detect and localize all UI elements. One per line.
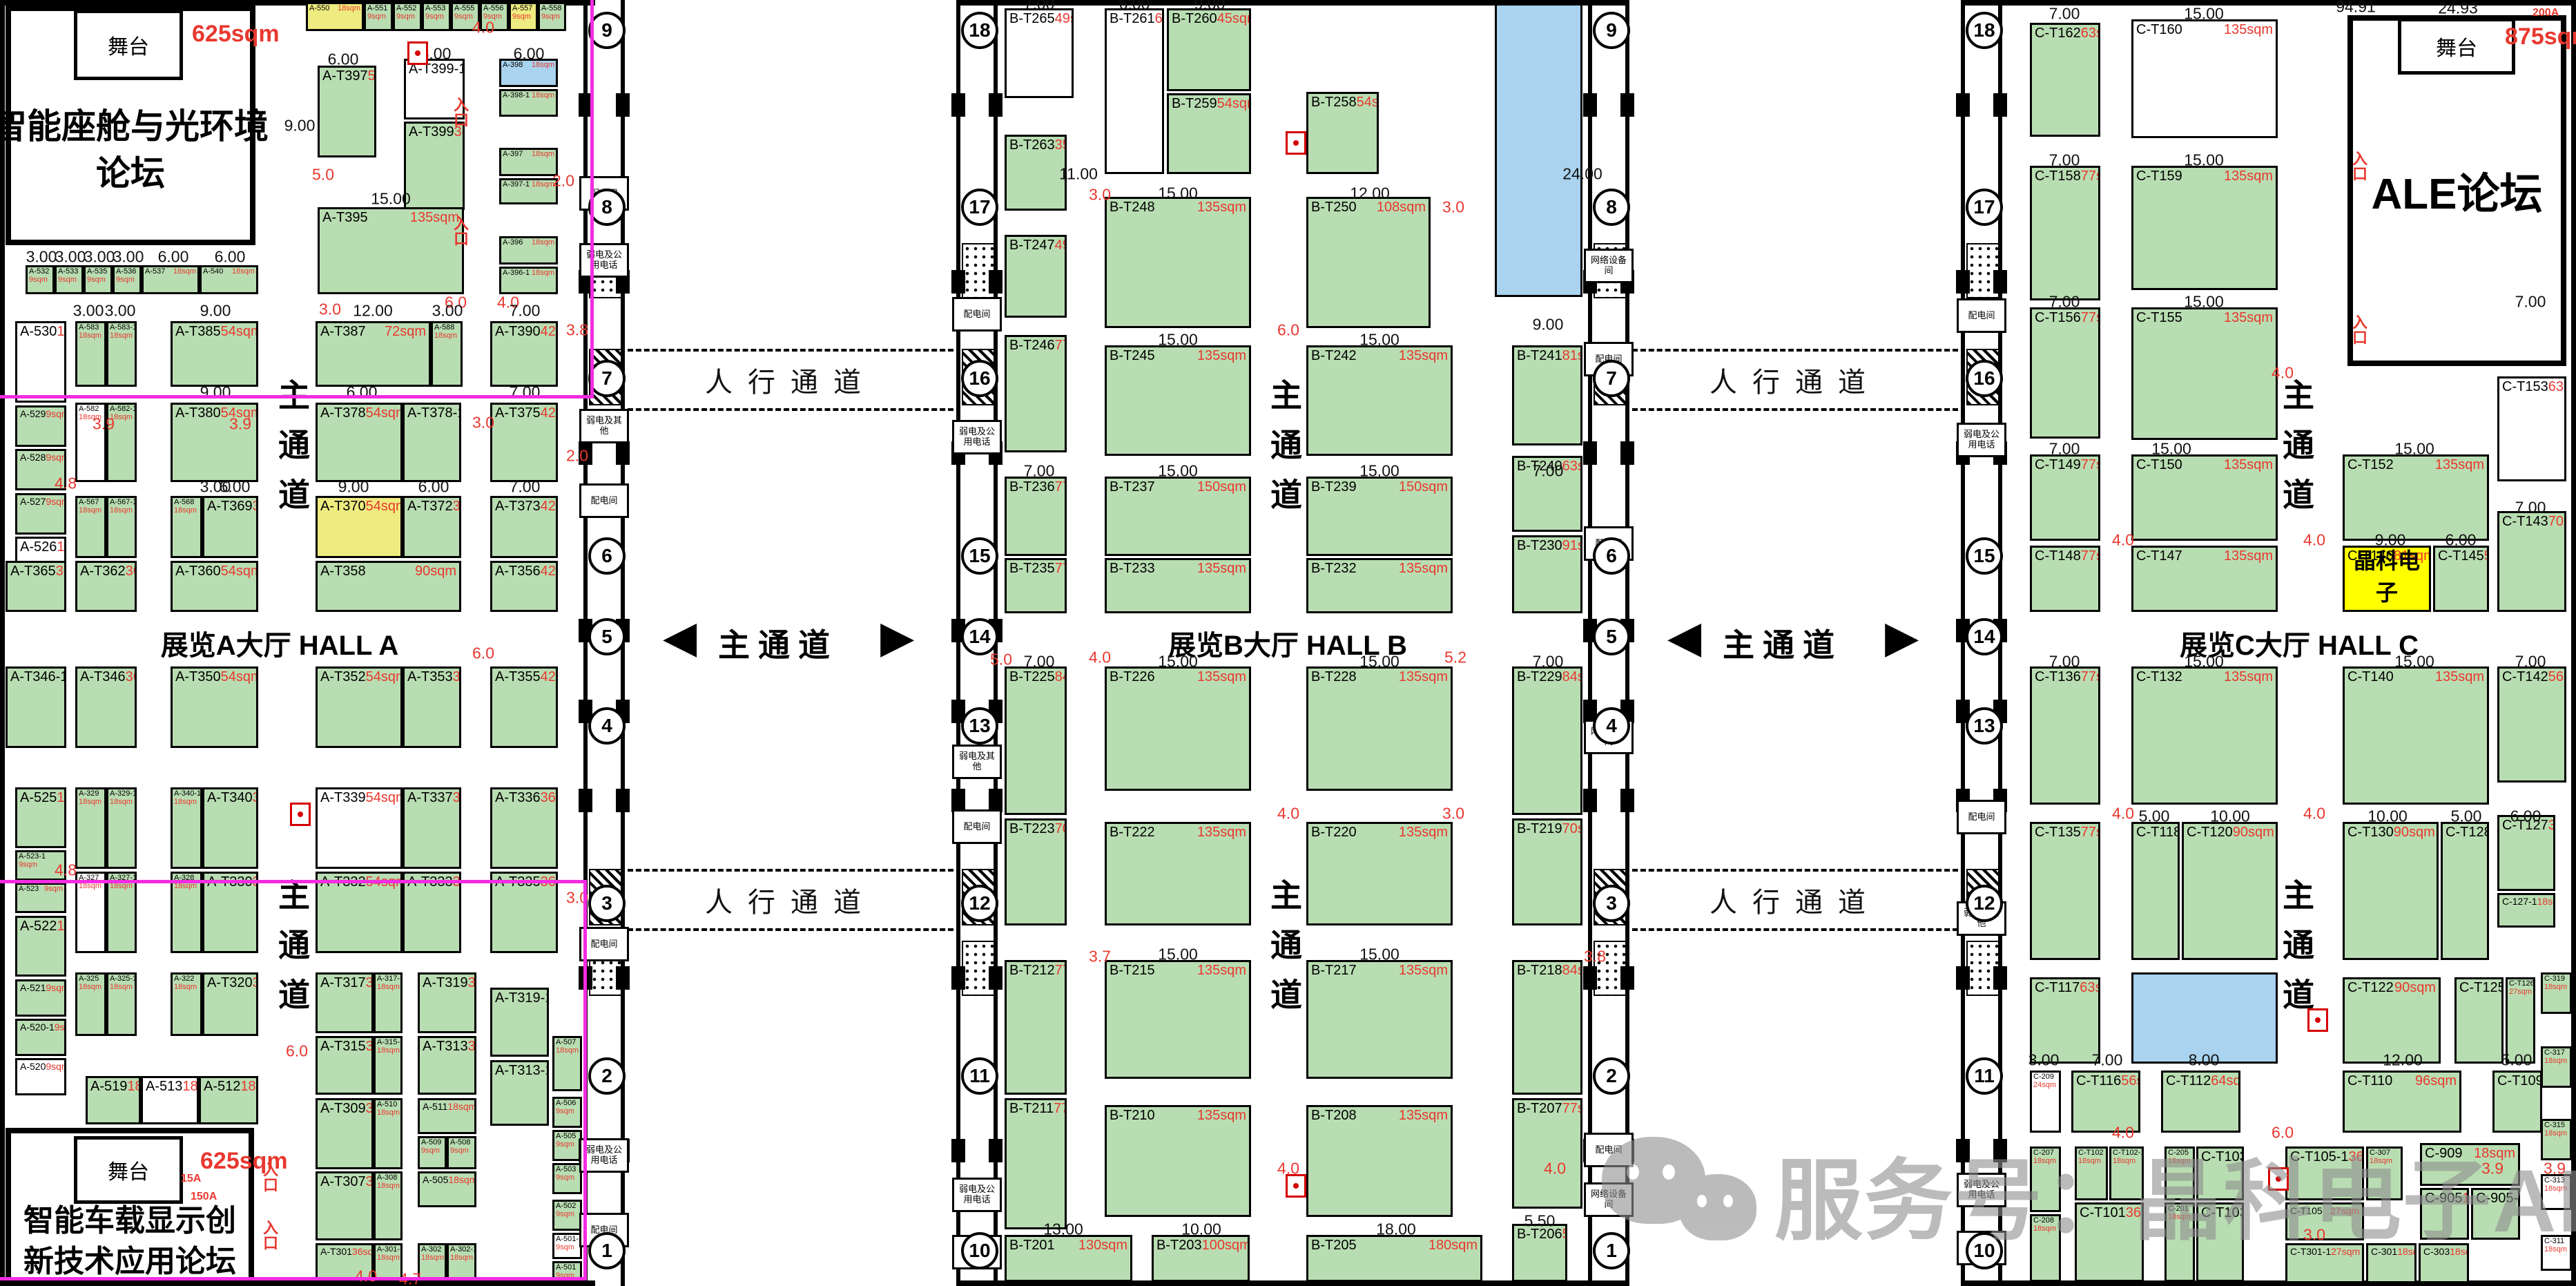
booth-C-905[interactable]: C-90518sqm [2420, 1188, 2469, 1240]
booth-A-511[interactable]: A-51118sqm [418, 1098, 476, 1134]
gate-number-17: 17 [1966, 189, 2003, 226]
booth-B-T245[interactable]: B-T245135sqm [1105, 345, 1251, 456]
booth-A-398-1[interactable]: A-398-118sqm [499, 89, 558, 117]
booth-A-529[interactable]: A-5299sqm [15, 405, 66, 447]
booth-A-540[interactable]: A-54018sqm [200, 265, 258, 294]
booth-A-519[interactable]: A-51918sqm [86, 1076, 141, 1124]
booth-C-T145[interactable]: C-T14554sqm [2433, 546, 2489, 612]
booth-C-T156[interactable]: C-T15677sqm [2030, 307, 2100, 439]
booth-C-T149[interactable]: C-T14977sqm [2030, 454, 2100, 541]
forum-smart-cockpit-area-label: 625sqm [192, 21, 280, 48]
booth-C-T135[interactable]: C-T13577sqm [2030, 822, 2100, 960]
booth-A-T372[interactable]: A-T37236sqm [403, 496, 461, 558]
booth-A-567[interactable]: A-56718sqm [75, 496, 106, 558]
booth-A-T356[interactable]: A-T35642sqm [490, 561, 558, 612]
booth-C-T143[interactable]: C-T14370sqm [2497, 511, 2566, 612]
booth-A-327[interactable]: A-32718sqm [75, 872, 106, 953]
booth-A-583-1[interactable]: A-583-118sqm [106, 321, 137, 387]
booth-A-397-1[interactable]: A-397-118sqm [499, 178, 558, 204]
gate-number-6: 6 [588, 537, 626, 575]
booth-label: C-90518sqm [2422, 1190, 2467, 1207]
corridor-gate-block [1583, 93, 1597, 117]
booth-B-T223[interactable]: B-T22370sqm [1005, 818, 1067, 925]
booth-A-T337[interactable]: A-T33736sqm [403, 787, 461, 869]
booth-label: C-T10136sqm [2077, 1205, 2142, 1222]
booth-B-T212[interactable]: B-T21277sqm [1005, 960, 1067, 1095]
booth-B-T233[interactable]: B-T233135sqm [1105, 558, 1251, 613]
booth-label: C-20118sqm [2167, 1205, 2193, 1222]
booth-label: C-T140135sqm [2345, 669, 2487, 686]
corridor-gate-block [951, 1139, 965, 1162]
dimension-label: 7.00 [2515, 499, 2546, 517]
booth-label: C-T14877sqm [2032, 548, 2098, 565]
gate-number-16: 16 [1966, 360, 2003, 397]
booth-A-301-1[interactable]: A-301-118sqm [374, 1243, 403, 1282]
booth-B-T247[interactable]: B-T24749sqm [1005, 235, 1067, 318]
hall-main-aisle-label-3: 主通道 [1261, 879, 1307, 1028]
booth-A-506[interactable]: A-5069sqm [552, 1097, 582, 1128]
booth-B-T241[interactable]: B-T24181sqm [1512, 345, 1582, 445]
corridor-gate-block [579, 789, 592, 812]
booth-A-536[interactable]: A-5369sqm [113, 265, 142, 294]
booth-A-510[interactable]: A-51018sqm [374, 1098, 403, 1169]
booth-C-303[interactable]: C-30318sqm [2419, 1243, 2469, 1283]
dimension-label: 4.0 [2112, 531, 2134, 550]
booth-label: A-39718sqm [501, 150, 556, 160]
dimension-label: 3.8 [566, 321, 588, 340]
booth-A-T333[interactable]: A-T33336sqm [403, 872, 461, 953]
booth-A-T309[interactable]: A-T30936sqm [316, 1098, 374, 1169]
booth-C-317[interactable]: C-31718sqm [2541, 1046, 2572, 1088]
booth-C-301[interactable]: C-30118sqm [2366, 1243, 2417, 1283]
booth-C-311[interactable]: C-31118sqm [2541, 1235, 2572, 1271]
booth-C-T152[interactable]: C-T152135sqm [2343, 454, 2489, 541]
booth-label: C-T12627sqm [2508, 979, 2533, 997]
booth-label: C-90918sqm [2422, 1145, 2518, 1162]
booth-B-T217[interactable]: B-T217135sqm [1306, 960, 1453, 1079]
booth-A-322[interactable]: A-32218sqm [171, 972, 202, 1036]
booth-B-T207[interactable]: B-T20777sqm [1512, 1098, 1582, 1209]
booth-B-T219[interactable]: B-T21970sqm [1512, 818, 1582, 925]
booth-B-T201[interactable]: B-T201130sqm [1005, 1235, 1132, 1282]
booth-A-533[interactable]: A-5339sqm [55, 265, 84, 294]
dimension-label: 4.8 [55, 861, 77, 880]
booth-A-328[interactable]: A-32818sqm [171, 872, 202, 953]
booth-label: A-53718sqm [144, 267, 197, 277]
booth-A-507[interactable]: A-50718sqm [552, 1036, 582, 1091]
booth-B-T210[interactable]: B-T210135sqm [1105, 1105, 1251, 1217]
gate-number-13: 13 [961, 707, 998, 745]
booth-label: A-5359sqm [86, 267, 110, 285]
booth-C-307[interactable]: C-30718sqm [2366, 1146, 2403, 1200]
utility-room-18: 网络设备间 [1584, 1182, 1634, 1217]
booth-label: B-T24181sqm [1514, 347, 1580, 365]
booth-C-T101[interactable]: C-T10136sqm [2075, 1202, 2144, 1282]
dimension-label: 11.00 [1059, 165, 1098, 184]
booth-label: A-T32036sqm [204, 975, 256, 992]
booth-A-T373[interactable]: A-T37342sqm [490, 496, 558, 558]
dimension-label: 7.00 [1024, 653, 1055, 671]
booth-label: C-30718sqm [2368, 1149, 2401, 1166]
booth-A-T350[interactable]: A-T35054sqm [171, 666, 258, 748]
booth-C-209[interactable]: C-20924sqm [2030, 1071, 2061, 1133]
booth-A-502[interactable]: A-5029sqm [552, 1200, 582, 1231]
booth-B-T246[interactable]: B-T24677sqm [1005, 335, 1067, 452]
booth-C-T109[interactable]: C-T10940sqm [2492, 1071, 2542, 1133]
booth-B-T225[interactable]: B-T22584sqm [1005, 666, 1067, 815]
booth-label: A-317-118sqm [376, 975, 400, 992]
booth-B-T236[interactable]: B-T23677sqm [1005, 477, 1067, 556]
booth-label: A-5329sqm [28, 267, 52, 285]
booth-C-T130[interactable]: C-T13090sqm [2343, 822, 2439, 960]
booth-A-520-1[interactable]: A-520-19sqm [15, 1019, 66, 1056]
booth-A-530[interactable]: A-53018sqm [15, 321, 66, 403]
booth-A-T369[interactable]: A-T36936sqm [202, 496, 258, 558]
booth-A-T307[interactable]: A-T30736sqm [316, 1171, 374, 1240]
booth-A-302-1[interactable]: A-302-118sqm [447, 1243, 476, 1282]
dimension-label: 4.0 [2303, 531, 2325, 550]
booth-B-T220[interactable]: B-T220135sqm [1306, 822, 1453, 925]
booth-A-583[interactable]: A-58318sqm [75, 321, 106, 387]
booth-A-T397[interactable]: A-T39754sqm [318, 66, 376, 157]
booth-A-340-1[interactable]: A-340-118sqm [171, 787, 202, 869]
booth-label: B-T222135sqm [1107, 824, 1249, 841]
booth-B-T239[interactable]: B-T239150sqm [1306, 477, 1453, 556]
booth-A-308[interactable]: A-30818sqm [374, 1171, 403, 1240]
booth-A-537[interactable]: A-53718sqm [142, 265, 200, 294]
booth-A-553[interactable]: A-5539sqm [422, 2, 451, 31]
booth-C-T102[interactable]: C-T10218sqm [2075, 1146, 2108, 1200]
booth-A-508[interactable]: A-5089sqm [447, 1136, 476, 1169]
booth-A-T395[interactable]: A-T395135sqm [318, 207, 464, 294]
booth-C-T128[interactable]: C-T12845sqm [2441, 822, 2489, 960]
booth-label: C-T11656sqm [2073, 1073, 2138, 1090]
booth-label: B-T215135sqm [1107, 962, 1249, 979]
booth-A-520[interactable]: A-5209sqm [15, 1058, 66, 1095]
booth-blue-2[interactable] [2131, 972, 2278, 1064]
booth-A-T353[interactable]: A-T35336sqm [403, 666, 461, 748]
booth-C-T132[interactable]: C-T132135sqm [2131, 666, 2278, 805]
corridor-gate-block [1993, 93, 2007, 117]
booth-label: B-T21277sqm [1007, 962, 1065, 979]
booth-label: B-T22370sqm [1007, 820, 1065, 838]
booth-A-396[interactable]: A-39618sqm [499, 236, 558, 265]
booth-C-T110[interactable]: C-T11096sqm [2343, 1071, 2461, 1133]
booth-C-207[interactable]: C-20718sqm [2030, 1146, 2061, 1212]
forum-vehicle-display-title: 智能车载显示创新技术应用论坛 [23, 1200, 236, 1283]
booth-B-T235[interactable]: B-T23577sqm [1005, 558, 1067, 613]
booth-C-T142[interactable]: C-T14256sqm [2497, 666, 2566, 783]
booth-A-501-1[interactable]: A-501-19sqm [552, 1233, 582, 1259]
dimension-label: 4.0 [2112, 805, 2134, 823]
booth-label: A-T31936sqm [420, 975, 474, 992]
booth-A-T387[interactable]: A-T38772sqm [316, 321, 431, 387]
dimension-label: 7.00 [1024, 0, 1055, 14]
booth-C-T158[interactable]: C-T15877sqm [2030, 166, 2100, 300]
booth-label: A-T34036sqm [204, 789, 256, 807]
booth-A-T375[interactable]: A-T37542sqm [490, 403, 558, 482]
booth-A-523[interactable]: A-5239sqm [15, 883, 66, 913]
booth-B-T248[interactable]: B-T248135sqm [1105, 197, 1251, 328]
booth-label: A-56718sqm [77, 498, 104, 515]
booth-A-T362[interactable]: A-T36236sqm [75, 561, 137, 612]
booth-C-T301-1[interactable]: C-T301-127sqm [2285, 1243, 2364, 1283]
booth-B-T226[interactable]: B-T226135sqm [1105, 666, 1251, 791]
corridor-gate-block [989, 270, 1003, 294]
booth-label: C-T301-127sqm [2287, 1245, 2362, 1258]
booth-A-325-1[interactable]: A-325-118sqm [106, 972, 137, 1036]
booth-C-T103-1[interactable]: C-T103-136sqm [2196, 1146, 2244, 1200]
utility-room-9: 弱电及其他 [952, 745, 1002, 779]
fire-hydrant-icon-2 [1286, 131, 1306, 155]
booth-C-T150[interactable]: C-T150135sqm [2131, 454, 2278, 541]
booth-A-T399[interactable]: A-T39936sqm [404, 122, 465, 210]
corridor-gate-block [1620, 441, 1634, 465]
booth-B-T263[interactable]: B-T26335sqm [1005, 135, 1067, 211]
booth-A-T332[interactable]: A-T33254sqm [316, 872, 403, 953]
gate-number-5: 5 [1593, 618, 1630, 655]
booth-A-525[interactable]: A-52518sqm [15, 787, 66, 848]
dimension-label: 6.00 [215, 248, 246, 267]
booth-B-T211[interactable]: B-T21177sqm [1005, 1098, 1067, 1229]
booth-A-509[interactable]: A-5099sqm [418, 1136, 447, 1169]
booth-A-T352[interactable]: A-T35254sqm [316, 666, 403, 748]
utility-room-10: 配电间 [952, 809, 1002, 844]
gate-number-7: 7 [588, 360, 626, 397]
booth-label: A-50718sqm [554, 1038, 580, 1055]
booth-C-T140[interactable]: C-T140135sqm [2343, 666, 2489, 805]
booth-B-T218[interactable]: B-T21884sqm [1512, 960, 1582, 1095]
forum-ale-area-label: 875sqm [2505, 23, 2576, 50]
booth-A-552[interactable]: A-5529sqm [393, 2, 422, 31]
booth-A-T358[interactable]: A-T35890sqm [316, 561, 461, 612]
booth-B-T258[interactable]: B-T25854sqm [1306, 92, 1379, 174]
booth-A-557[interactable]: A-5579sqm [509, 2, 538, 31]
booth-label: B-T205180sqm [1308, 1237, 1480, 1254]
dimension-label: 3.9 [229, 415, 251, 434]
booth-B-T242[interactable]: B-T242135sqm [1306, 345, 1453, 456]
booth-A-T317[interactable]: A-T31736sqm [316, 972, 374, 1033]
booth-C-909[interactable]: C-90918sqm [2420, 1143, 2520, 1186]
booth-label: C-T10940sqm [2495, 1073, 2540, 1090]
booth-label: C-T10527sqm [2287, 1205, 2362, 1218]
booth-C-905-1[interactable]: C-905-118sqm [2471, 1188, 2520, 1240]
booth-C-T160[interactable]: C-T160135sqm [2131, 19, 2278, 138]
booth-A-T378[interactable]: A-T37854sqm [316, 403, 403, 482]
gate-number-18: 18 [961, 12, 998, 49]
exhibition-floor-plan: 服务号：晶科电子APT 人行通道人行通道◀▶主通道人行通道人行通道◀▶主通道98… [0, 0, 2576, 1286]
booth-A-327-1[interactable]: A-327-118sqm [106, 872, 137, 953]
booth-C-T102-1[interactable]: C-T102-118sqm [2109, 1146, 2144, 1200]
gate-number-11: 11 [1966, 1057, 2003, 1095]
dimension-label: 3.00 [73, 302, 104, 320]
dimension-label: 4.0 [2303, 805, 2325, 823]
booth-A-T313[interactable]: A-T31336sqm [418, 1036, 476, 1095]
booth-B-T230[interactable]: B-T23091sqm [1512, 535, 1582, 613]
booth-B-T203[interactable]: B-T203100sqm [1152, 1235, 1250, 1282]
dimension-label: 7.00 [2515, 293, 2546, 311]
booth-blue-1[interactable] [1495, 3, 1582, 297]
booth-A-T319[interactable]: A-T31936sqm [418, 972, 476, 1033]
booth-A-513[interactable]: A-51318sqm [141, 1076, 199, 1124]
booth-C-313[interactable]: C-31318sqm [2541, 1174, 2572, 1210]
booth-C-T136[interactable]: C-T13677sqm [2030, 666, 2100, 805]
booth-label: C-T13577sqm [2032, 824, 2098, 841]
booth-A-T355[interactable]: A-T35542sqm [490, 666, 558, 748]
booth-label: A-5099sqm [420, 1138, 445, 1155]
booth-A-T319-1[interactable]: A-T319-136sqm [490, 988, 549, 1057]
booth-A-302[interactable]: A-30218sqm [418, 1243, 447, 1282]
booth-A-T346-1[interactable]: A-T346-136sqm [6, 666, 66, 748]
booth-label: A-51218sqm [201, 1078, 256, 1095]
dimension-label: 3.00 [113, 248, 144, 267]
booth-A-532[interactable]: A-5329sqm [26, 265, 55, 294]
dimension-label: 8.00 [2189, 1051, 2220, 1070]
booth-A-315-1[interactable]: A-315-118sqm [374, 1036, 403, 1095]
booth-label: A-398-118sqm [501, 91, 556, 101]
booth-A-397[interactable]: A-39718sqm [499, 148, 558, 176]
booth-label: A-5339sqm [57, 267, 81, 285]
booth-label: C-905-118sqm [2473, 1190, 2518, 1207]
entrance-label-2: 入口 [258, 1162, 280, 1192]
booth-A-535[interactable]: A-5359sqm [84, 265, 113, 294]
booth-A-T315[interactable]: A-T31536sqm [316, 1036, 374, 1095]
booth-B-T206[interactable]: B-T20655sqm [1512, 1224, 1567, 1282]
booth-C-315[interactable]: C-31518sqm [2541, 1119, 2572, 1160]
booth-B-T260[interactable]: B-T26045sqm [1167, 8, 1251, 91]
booth-C-205[interactable]: C-20518sqm [2165, 1146, 2195, 1200]
booth-A-329[interactable]: A-32918sqm [75, 787, 106, 869]
booth-A-521[interactable]: A-5219sqm [15, 979, 66, 1017]
booth-label: A-T313-130sqm [492, 1062, 547, 1079]
gate-number-12: 12 [961, 885, 998, 922]
booth-C-T155[interactable]: C-T155135sqm [2131, 307, 2278, 440]
booth-label: A-T37236sqm [405, 498, 459, 515]
booth-C-127-1[interactable]: C-127-118sqm [2497, 893, 2555, 928]
dimension-label: 6.0 [1277, 321, 1299, 340]
booth-A-503[interactable]: A-5039sqm [552, 1163, 582, 1194]
booth-A-T335[interactable]: A-T33536sqm [490, 872, 558, 953]
booth-C-T105-1[interactable]: C-T105-136sqm [2285, 1146, 2364, 1200]
booth-label: B-T233135sqm [1107, 560, 1249, 577]
booth-A-T313-1[interactable]: A-T313-130sqm [490, 1060, 549, 1126]
booth-C-T103[interactable]: C-T10336sqm [2196, 1202, 2244, 1282]
booth-C-T127[interactable]: C-T12736sqm [2497, 815, 2555, 891]
booth-label: C-T132135sqm [2133, 669, 2276, 686]
booth-A-329-1[interactable]: A-329-118sqm [106, 787, 137, 869]
booth-A-396-1[interactable]: A-396-118sqm [499, 267, 558, 294]
booth-B-T222[interactable]: B-T222135sqm [1105, 822, 1251, 925]
booth-C-T112[interactable]: C-T11264sqm [2161, 1071, 2240, 1133]
booth-label: A-5299sqm [17, 407, 64, 421]
booth-C-T118[interactable]: C-T11845sqm [2131, 822, 2180, 960]
dimension-label: 6.00 [158, 248, 189, 267]
booth-A-551[interactable]: A-5519sqm [364, 2, 393, 31]
booth-A-T320[interactable]: A-T32036sqm [202, 972, 258, 1036]
booth-A-T330[interactable]: A-T33036sqm [202, 872, 258, 953]
booth-A-505[interactable]: A-50518sqm [418, 1171, 476, 1207]
corridor-gate-block [1620, 966, 1634, 990]
gate-number-10: 10 [1966, 1232, 2003, 1269]
booth-B-T232[interactable]: B-T232135sqm [1306, 558, 1453, 613]
booth-label: A-5519sqm [366, 4, 391, 21]
hall-main-aisle-label-1: 主通道 [269, 879, 315, 1028]
booth-A-325[interactable]: A-32518sqm [75, 972, 106, 1036]
booth-A-588[interactable]: A-58818sqm [431, 321, 463, 387]
booth-A-T339[interactable]: A-T33954sqm [316, 787, 403, 869]
booth-C-201[interactable]: C-20118sqm [2165, 1202, 2195, 1282]
booth-A-550[interactable]: A-55018sqm [306, 2, 364, 31]
dimension-label: 15.00 [1359, 462, 1400, 481]
dimension-label: 3.00 [2028, 1051, 2060, 1070]
booth-label: A-5059sqm [554, 1132, 580, 1149]
booth-C-319[interactable]: C-31918sqm [2541, 972, 2572, 1014]
booth-A-T385[interactable]: A-T38554sqm [171, 321, 258, 387]
booth-A-317-1[interactable]: A-317-118sqm [374, 972, 403, 1033]
dimension-label: 7.00 [2049, 653, 2080, 671]
hall-main-aisle-label-2: 主通道 [1261, 378, 1307, 528]
booth-A-T390[interactable]: A-T39042sqm [490, 321, 558, 387]
booth-A-527[interactable]: A-5279sqm [15, 493, 66, 535]
booth-label: A-52618sqm [17, 539, 64, 556]
booth-B-T215[interactable]: B-T215135sqm [1105, 960, 1251, 1079]
booth-A-T346[interactable]: A-T34636sqm [75, 666, 137, 748]
gate-number-10: 10 [961, 1232, 998, 1269]
booth-A-T340[interactable]: A-T34036sqm [202, 787, 258, 869]
booth-C-208[interactable]: C-20818sqm [2030, 1214, 2061, 1282]
booth-C-T147[interactable]: C-T147135sqm [2131, 546, 2278, 612]
booth-B-T261[interactable]: B-T26166sqm [1105, 8, 1164, 174]
booth-C-T148[interactable]: C-T14877sqm [2030, 546, 2100, 612]
booth-A-522[interactable]: A-52218sqm [15, 916, 66, 977]
main-aisle-arrow-left: ◀ [1667, 615, 1701, 659]
booth-A-T378-1[interactable]: A-T378-136sqm [403, 403, 461, 482]
gate-number-1: 1 [588, 1232, 626, 1269]
booth-A-558[interactable]: A-5589sqm [538, 2, 566, 31]
booth-B-T205[interactable]: B-T205180sqm [1306, 1235, 1482, 1282]
booth-C-T159[interactable]: C-T159135sqm [2131, 166, 2278, 290]
booth-label: A-5039sqm [554, 1165, 580, 1182]
booth-A-T336[interactable]: A-T33636sqm [490, 787, 558, 869]
booth-C-T153[interactable]: C-T15363sqm [2497, 376, 2566, 481]
booth-label: A-58318sqm [77, 323, 104, 340]
booth-C-T125[interactable]: C-T12545sqm [2454, 977, 2504, 1064]
booth-B-T229[interactable]: B-T22984sqm [1512, 666, 1582, 815]
booth-A-T370[interactable]: A-T37054sqm [316, 496, 403, 558]
booth-B-T250[interactable]: B-T250108sqm [1306, 197, 1431, 328]
gate-number-9: 9 [1593, 12, 1630, 49]
booth-A-T360[interactable]: A-T36054sqm [171, 561, 258, 612]
booth-A-567-1[interactable]: A-567-118sqm [106, 496, 137, 558]
booth-B-T259[interactable]: B-T25954sqm [1167, 93, 1251, 174]
booth-C-T162[interactable]: C-T16263sqm [2030, 23, 2100, 137]
booth-A-T365[interactable]: A-T36536sqm [6, 561, 66, 612]
forum-smart-cockpit-stage: 舞台 [74, 10, 183, 80]
booth-B-T228[interactable]: B-T228135sqm [1306, 666, 1453, 791]
booth-C-T146[interactable]: C-T14681sqm晶科电子 [2343, 546, 2431, 612]
booth-A-505[interactable]: A-5059sqm [552, 1130, 582, 1161]
booth-B-T208[interactable]: B-T208135sqm [1306, 1105, 1453, 1217]
entrance-label-5: 入口 [2347, 314, 2370, 345]
booth-B-T237[interactable]: B-T237150sqm [1105, 477, 1251, 556]
pedestrian-passage-1-0: 人行通道 [1632, 349, 1958, 411]
booth-B-T265[interactable]: B-T26549sqm [1005, 8, 1074, 98]
booth-A-512[interactable]: A-51218sqm [199, 1076, 258, 1124]
booth-A-568[interactable]: A-56818sqm [171, 496, 202, 558]
dimension-label: 4.0 [472, 19, 494, 37]
pedestrian-passage-1-1: 人行通道 [1632, 869, 1958, 931]
booth-C-T120[interactable]: C-T12090sqm [2182, 822, 2278, 960]
